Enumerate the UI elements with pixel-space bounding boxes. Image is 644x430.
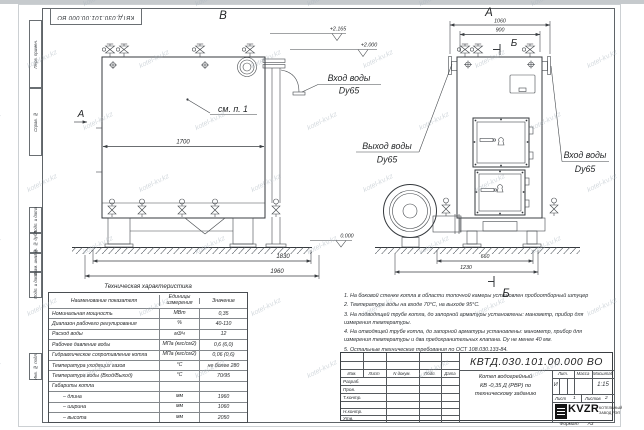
tb-col-list: Лист: [368, 371, 379, 376]
tb-col-ndoc: N докум.: [393, 371, 410, 376]
table-row: Гидравлическое сопротивление котлаМПа (к…: [49, 350, 247, 360]
drain-valve: [211, 199, 219, 217]
top-valve: [102, 44, 114, 57]
col-header: Значение: [199, 298, 247, 304]
elevation-2165: +2.165: [330, 27, 346, 33]
boiler-side-view: 1700 1830 1960 В А см. п. 1 +2.165 +2.00…: [72, 10, 381, 279]
svg-text:Вход воды: Вход воды: [564, 150, 607, 160]
tb-role-razrab: Разраб.: [343, 379, 360, 384]
top-valve: [522, 44, 534, 57]
smoke-outlet-flange: [238, 58, 257, 77]
table-row: Рабочее давление водыМПа (кгс/см2)0,6 (6…: [49, 339, 247, 349]
tb-scale-value: 1:15: [597, 382, 609, 388]
table-row: – высотамм2050: [49, 412, 247, 422]
section-a-label: А: [77, 109, 85, 120]
inspection-panel: [510, 75, 535, 93]
note-2: 2. Температура воды на входе 70°С, на вы…: [344, 301, 610, 309]
tb-col-izm: Изм.: [347, 371, 356, 376]
table-row: Температура уходящих газов°Сне более 280: [49, 360, 247, 370]
tb-sheet-label: Лист: [555, 396, 566, 401]
tb-col-data: Дата: [444, 371, 455, 376]
elevation-2000: +2.000: [361, 43, 377, 49]
svg-text:Dy65: Dy65: [339, 86, 360, 96]
tb-lit-label: Лит.: [558, 371, 568, 376]
table-row: Расход водым3/ч12: [49, 329, 247, 339]
table-row: – ширинамм1060: [49, 402, 247, 412]
table-row: Номинальная мощностьМВт0,35: [49, 308, 247, 318]
tb-sheets-value: 2: [605, 396, 608, 401]
duct-valve: [442, 198, 450, 216]
tb-doc-number: КВТД.030.101.00.000 ВО: [459, 353, 614, 370]
elevation-marks: +2.165 +2.000 0.000: [270, 27, 377, 248]
note-1: 1. На боковой стенке котла в области топ…: [344, 292, 610, 300]
tb-role-tkontr: Т.контр.: [343, 395, 362, 400]
top-valve: [242, 44, 254, 57]
dim-900: 900: [496, 28, 505, 34]
top-valve: [192, 44, 204, 57]
dim-660: 660: [481, 254, 490, 260]
tb-role-prov: Пров.: [343, 387, 355, 392]
note-4: 4. На отводящей трубе котла, до запорной…: [344, 328, 610, 345]
dim-1700: 1700: [176, 140, 190, 146]
inlet-stub-right: [542, 57, 551, 75]
ground-hatch: [375, 248, 580, 255]
table-header-row: Наименование показателя Единицы измерени…: [49, 293, 247, 308]
note-3: 3. На подводящей трубе котла, до запорно…: [344, 311, 610, 328]
boiler-front-view: А 1060 900 Б: [356, 7, 609, 300]
vent-mark: [109, 61, 117, 69]
dim-1830: 1830: [276, 254, 290, 260]
blower-fan: [384, 185, 462, 248]
tech-table-title: Техническая характеристика: [48, 283, 248, 290]
table-row: Температура воды (Вход/Выход)°С70/95: [49, 370, 247, 380]
lower-ash-door: [475, 170, 529, 215]
svg-text:Выход воды: Выход воды: [362, 141, 412, 151]
table-row: Диапазон рабочего регулирования%40-110: [49, 318, 247, 328]
tb-col-podp: Подп.: [424, 371, 435, 376]
vent-mark: [201, 61, 209, 69]
dim-1230: 1230: [460, 265, 472, 271]
dim-1060: 1060: [494, 19, 506, 25]
tb-sheet-value: 1: [573, 396, 576, 401]
technical-notes: 1. На боковой стенке котла в области топ…: [344, 292, 610, 355]
inlet-pipe-assembly: [263, 59, 305, 247]
col-header: Единицы измерения: [159, 295, 199, 306]
elevation-0000: 0.000: [340, 234, 353, 240]
drain-valve: [178, 199, 186, 217]
view-a-label: А: [484, 7, 493, 19]
kvzr-logo-icon: [555, 404, 567, 419]
base-frame: [460, 218, 545, 247]
view-b-label: В: [219, 10, 227, 22]
svg-text:Dy65: Dy65: [377, 155, 398, 165]
col-header: Наименование показателя: [49, 298, 159, 304]
side-drain-valve: [550, 198, 558, 216]
top-valve: [116, 44, 128, 57]
vent-mark: [527, 61, 535, 69]
tb-lit-value: И: [554, 382, 558, 388]
table-row: Габариты котла: [49, 381, 247, 391]
tb-role-utv: Утв.: [343, 416, 353, 421]
top-valve: [470, 44, 482, 57]
drain-valve: [138, 199, 146, 217]
tb-mass-label: Масса: [577, 371, 590, 376]
tb-role-nkontr: Н.контр.: [343, 409, 362, 414]
top-valve: [457, 44, 469, 57]
outlet-stub-left: [449, 57, 458, 75]
kvzr-logo-text: KVZR: [568, 403, 599, 415]
drain-valve: [272, 199, 280, 217]
vent-mark: [464, 61, 472, 69]
support-legs: [105, 218, 256, 247]
title-block: Изм. Лист N докум. Подп. Дата Разраб. Пр…: [340, 352, 613, 421]
inlet-label-front: Вход воды Dy65: [551, 66, 609, 174]
outlet-label: Выход воды Dy65: [356, 64, 452, 165]
format-label: Формат А3: [540, 422, 613, 427]
section-b-top-label: Б: [511, 38, 518, 49]
drain-valve: [108, 199, 116, 217]
inlet-label-side: Вход воды Dy65: [302, 73, 381, 96]
svg-text:Вход воды: Вход воды: [328, 73, 371, 83]
drawing-sheet: Перв. примен. Справ. № Подп. и дата Инв.…: [0, 0, 644, 430]
tb-scale-label: Масштаб: [593, 371, 613, 376]
upper-furnace-door: [473, 118, 533, 167]
tb-product-name: Котел водогрейный КВ -0,35 Д (РВР) по те…: [459, 373, 552, 399]
tb-sheets-label: Листов: [585, 396, 601, 401]
table-row: – длинамм1960: [49, 391, 247, 401]
see-item-callout: см. п. 1: [218, 104, 248, 114]
tech-table: Наименование показателя Единицы измерени…: [48, 292, 248, 423]
dim-1960: 1960: [270, 269, 284, 275]
svg-text:Dy65: Dy65: [575, 164, 596, 174]
kvzr-logo-subtext: КОТЕЛЬНЫЙ ЗАВОД РЭП: [599, 406, 622, 415]
